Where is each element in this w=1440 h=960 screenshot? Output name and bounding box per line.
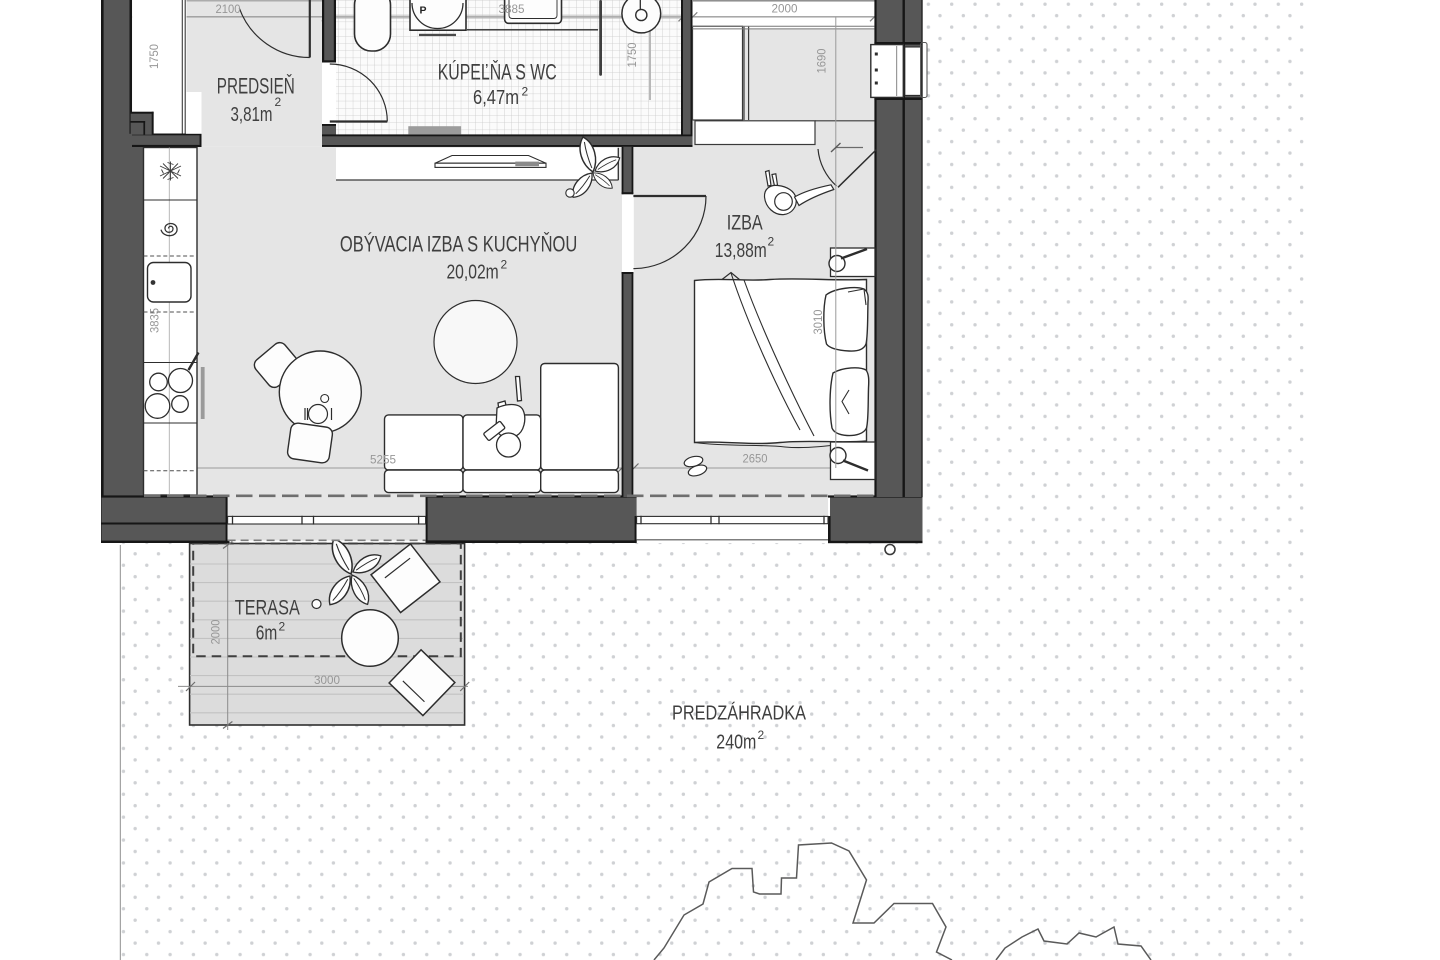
svg-text:2: 2 — [279, 620, 286, 634]
svg-text:3835: 3835 — [148, 308, 162, 333]
svg-text:TERASA: TERASA — [235, 597, 300, 620]
svg-text:1750: 1750 — [147, 44, 161, 69]
svg-text:PREDZÁHRADKA: PREDZÁHRADKA — [672, 702, 806, 725]
svg-text:OBÝVACIA IZBA S KUCHYŇOU: OBÝVACIA IZBA S KUCHYŇOU — [340, 232, 578, 257]
svg-text:3,81m: 3,81m — [231, 103, 273, 126]
svg-text:PREDSIEŇ: PREDSIEŇ — [217, 74, 295, 99]
svg-text:2: 2 — [275, 95, 282, 109]
svg-text:1690: 1690 — [815, 48, 829, 73]
svg-text:2000: 2000 — [209, 619, 223, 644]
svg-text:2: 2 — [501, 258, 508, 272]
svg-text:IZBA: IZBA — [727, 212, 763, 235]
svg-text:2650: 2650 — [743, 452, 768, 466]
svg-text:20,02m: 20,02m — [446, 262, 498, 284]
svg-text:3010: 3010 — [811, 309, 825, 334]
svg-text:2: 2 — [758, 728, 765, 742]
svg-text:240m: 240m — [716, 731, 756, 754]
svg-text:2000: 2000 — [772, 2, 798, 16]
svg-text:6,47m: 6,47m — [473, 86, 519, 109]
svg-text:6m: 6m — [256, 622, 278, 645]
svg-text:3885: 3885 — [499, 2, 525, 16]
svg-text:P: P — [420, 5, 427, 17]
svg-text:2100: 2100 — [216, 2, 241, 16]
svg-text:2: 2 — [768, 235, 775, 249]
svg-text:5255: 5255 — [370, 453, 396, 467]
svg-text:1750: 1750 — [625, 42, 639, 67]
svg-text:KÚPEĽŇA S WC: KÚPEĽŇA S WC — [438, 59, 557, 84]
svg-text:2: 2 — [522, 85, 529, 99]
svg-text:3000: 3000 — [314, 673, 340, 687]
svg-text:13,88m: 13,88m — [715, 239, 767, 262]
